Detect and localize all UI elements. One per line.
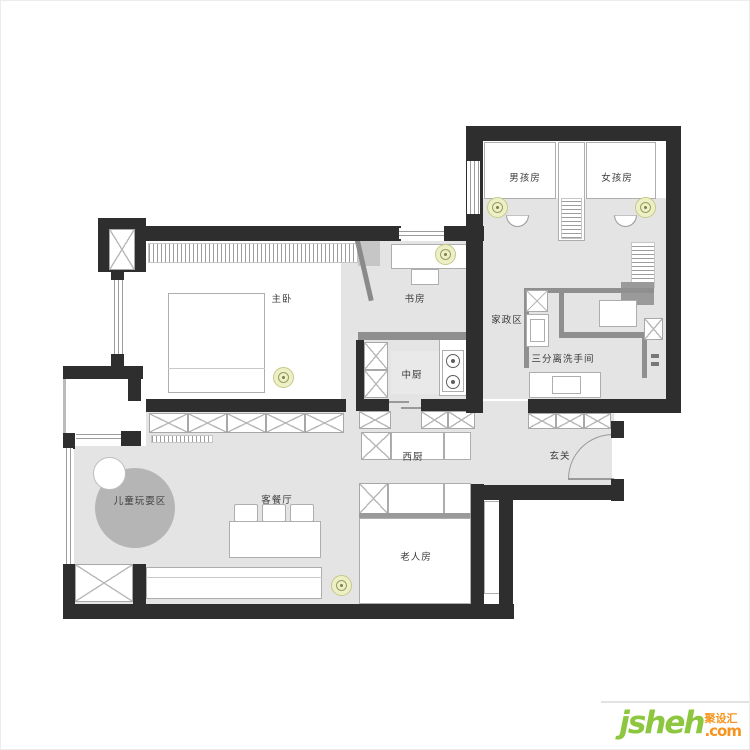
wall-segment <box>356 399 389 411</box>
elder-headboard-cabinet <box>388 483 444 514</box>
ceiling-light-icon <box>635 197 656 218</box>
window <box>467 161 480 214</box>
watermark-brand-text: jsheh <box>619 708 703 739</box>
elder-storage-cabinet <box>444 432 471 460</box>
wardrobe-cabinet <box>305 413 344 433</box>
room-label-foyer: 玄关 <box>549 448 570 462</box>
washing-machine-door <box>530 319 545 342</box>
sliding-door <box>389 401 409 403</box>
wardrobe-cabinet <box>149 413 188 433</box>
kitchen-cabinet <box>364 370 388 398</box>
bay-window-line <box>63 379 66 433</box>
room-label-study: 书房 <box>404 291 425 305</box>
bathroom-wall <box>559 332 647 338</box>
room-label-master-bedroom: 主卧 <box>271 291 292 305</box>
divider-closet-hatch <box>561 198 582 239</box>
master-bed <box>168 293 265 393</box>
wall-segment <box>146 399 346 412</box>
dining-chair <box>290 504 314 522</box>
wardrobe-cabinet <box>266 413 305 433</box>
wall-segment <box>128 366 141 401</box>
wall-segment <box>666 141 681 403</box>
watermark-tld: .com <box>704 724 741 739</box>
wall-segment <box>111 272 124 280</box>
wall-segment <box>611 421 624 438</box>
kitchen-partition <box>358 332 471 340</box>
wall-segment <box>133 564 146 606</box>
vanity-sink <box>552 376 581 394</box>
wall-segment <box>63 604 514 619</box>
entry-door-opening <box>612 436 624 480</box>
play-table-circle <box>93 457 126 490</box>
room-label-housekeeping: 家政区 <box>491 312 523 326</box>
tv-cabinet <box>151 435 213 443</box>
window <box>63 448 73 564</box>
shoe-cabinet <box>556 413 584 429</box>
bed-blanket-line <box>168 368 265 369</box>
stove-burner-icon <box>446 375 460 389</box>
kitchen-cabinet <box>364 342 388 370</box>
shoe-cabinet <box>584 413 611 429</box>
column <box>109 229 135 270</box>
floor-plan: 主卧 书房 男孩房 女孩房 家政区 三分离洗手间 中厨 西厨 玄关 客餐厅 儿童… <box>0 0 750 750</box>
elder-headboard-cabinet <box>444 483 471 514</box>
room-label-girls-room: 女孩房 <box>601 170 633 184</box>
watermark-divider <box>601 701 750 703</box>
ceiling-light-icon <box>331 575 352 596</box>
bathroom-wall <box>559 288 564 338</box>
wall-segment <box>121 431 141 446</box>
door-handle-icon <box>651 354 659 358</box>
ceiling-light-icon <box>435 244 456 265</box>
wall-segment <box>63 433 75 449</box>
bench-line <box>146 577 322 578</box>
wall-segment <box>499 498 513 605</box>
window-bench <box>146 567 322 599</box>
master-wardrobe-strip <box>148 243 358 263</box>
window <box>111 280 123 354</box>
entry-door-leaf <box>568 478 614 480</box>
wardrobe-cabinet <box>188 413 227 433</box>
window <box>399 228 445 239</box>
dining-chair <box>262 504 286 522</box>
study-table <box>411 269 439 285</box>
elder-storage-cabinet <box>361 432 391 460</box>
corridor-cabinet <box>421 411 448 429</box>
room-label-chinese-kitchen: 中厨 <box>401 367 422 381</box>
wall-segment <box>466 126 681 141</box>
elder-side-cabinet <box>484 501 500 594</box>
wall-segment <box>356 340 364 399</box>
corridor-cabinet <box>448 411 475 429</box>
shoe-cabinet <box>528 413 556 429</box>
watermark-logo: jsheh 聚设汇 .com <box>619 708 741 739</box>
dining-chair <box>234 504 258 522</box>
door-handle-icon <box>651 362 659 366</box>
sliding-door <box>401 407 421 409</box>
toilet <box>599 300 637 327</box>
dining-table <box>229 521 321 558</box>
ceiling-light-icon <box>487 197 508 218</box>
room-label-kids-play-area: 儿童玩耍区 <box>114 493 167 507</box>
room-label-western-kitchen: 西厨 <box>402 449 423 463</box>
bathroom-cabinet <box>644 318 663 340</box>
room-label-split-bathroom: 三分离洗手间 <box>531 351 594 365</box>
room-label-living-dining: 客餐厅 <box>261 492 293 506</box>
room-label-elderly-room: 老人房 <box>400 549 432 563</box>
window <box>76 434 122 442</box>
corridor-cabinet <box>359 411 391 429</box>
room-label-boys-room: 男孩房 <box>509 170 541 184</box>
wardrobe-cabinet <box>227 413 266 433</box>
elder-headboard-cabinet <box>359 483 388 514</box>
stove-burner-icon <box>446 354 460 368</box>
ceiling-light-icon <box>273 367 294 388</box>
wall-segment <box>146 226 401 241</box>
laundry-cabinet <box>526 290 548 312</box>
wall-segment <box>528 399 681 413</box>
wall-segment <box>471 484 484 604</box>
ac-platform <box>75 564 133 602</box>
